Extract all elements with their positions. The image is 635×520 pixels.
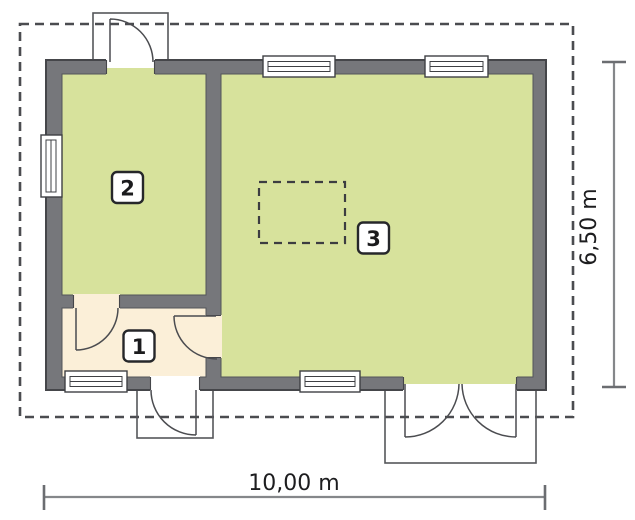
top-entry-porch <box>93 13 168 62</box>
room-1-number: 1 <box>132 335 147 359</box>
room-1-label: 1 <box>124 331 155 362</box>
left-wall-window-icon <box>41 135 62 197</box>
height-dimension: 6,50 m <box>577 62 626 387</box>
room3-room1-door-opening <box>205 315 222 358</box>
width-dimension: 10,00 m <box>44 471 545 510</box>
top-door-opening-outer <box>106 59 155 68</box>
room-2-number: 2 <box>120 177 135 201</box>
garage-door-right-swing-icon <box>462 384 516 437</box>
height-dimension-label: 6,50 m <box>577 188 602 265</box>
top-entry-door-swing-icon <box>110 19 153 62</box>
width-dimension-label: 10,00 m <box>248 471 339 496</box>
top-wall-window-left-icon <box>263 56 335 77</box>
garage-door-opening-inner <box>403 376 517 384</box>
front-entry-porch <box>137 390 213 438</box>
room-2-label: 2 <box>112 172 143 203</box>
floor-plan: 1 2 3 10,00 m 6,50 m <box>0 0 635 520</box>
top-wall-window-right-icon <box>425 56 488 77</box>
top-door-opening-inner <box>106 68 155 75</box>
building <box>46 60 546 390</box>
garage-porch <box>385 390 536 463</box>
room-3-label: 3 <box>358 223 389 254</box>
garage-door-left-swing-icon <box>405 384 459 437</box>
garage-door-opening-outer <box>403 384 517 391</box>
bottom-wall-window-hall-icon <box>65 371 127 392</box>
room2-room1-door-opening <box>73 294 120 309</box>
room-3-number: 3 <box>366 227 381 251</box>
front-door-opening <box>150 376 200 391</box>
front-entry-door-swing-icon <box>151 390 196 435</box>
bottom-wall-window-room3-icon <box>300 371 360 392</box>
